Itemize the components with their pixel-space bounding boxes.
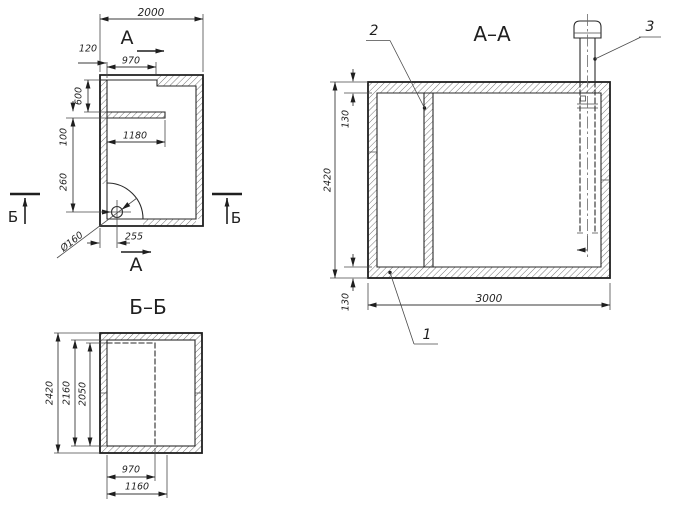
bb-dim-2050-label: 2050: [78, 382, 89, 406]
plan-inner-contour: [100, 80, 196, 219]
bb-bottom-wall: [100, 446, 202, 453]
bb-inner-contour: [107, 340, 195, 446]
bb-opening-hidden-line: [107, 343, 155, 446]
plan-section-marker-b-left: Б: [8, 208, 18, 226]
callout-1-label: 1: [423, 327, 432, 343]
plan-section-marker-a-bottom: А: [130, 254, 143, 276]
aa-bottom-slab: [368, 267, 610, 278]
plan-top-wall: [157, 75, 203, 86]
plan-section-marker-a-top: А: [121, 27, 134, 49]
aa-dim-3000-label: 3000: [476, 293, 503, 305]
plan-pit-arc: [107, 183, 143, 219]
plan-outer-contour: [100, 75, 203, 226]
plan-bottom-wall: [143, 219, 196, 226]
vent-pipe-clamp: [581, 96, 586, 101]
drawing-sheet: 2000 А 120 970 600 100 260 1180 255 Ø160: [0, 0, 679, 514]
aa-outer-contour: [368, 82, 610, 278]
plan-section-marker-b-right: Б: [231, 209, 241, 227]
section-bb-title: Б–Б: [129, 295, 166, 319]
section-aa-title: А–А: [473, 22, 511, 46]
aa-dim-130bot-label: 130: [341, 293, 352, 311]
drawing-canvas: 2000 А 120 970 600 100 260 1180 255 Ø160: [0, 0, 679, 514]
plan-dim-2000-ext: [100, 14, 203, 72]
plan-right-wall: [196, 86, 203, 219]
section-bb-view: Б–Б 2420 2160 2050 970 1160: [45, 295, 203, 499]
plan-left-wall: [100, 80, 107, 184]
aa-inner-contour: [377, 93, 601, 267]
aa-dim-2420-label: 2420: [323, 168, 334, 192]
plan-dim-255-label: 255: [125, 232, 143, 243]
aa-partition-wall: [424, 93, 433, 267]
bb-dim-2420-label: 2420: [45, 381, 56, 405]
plan-diameter-arrow-d: [122, 204, 129, 209]
bb-outer-contour: [100, 333, 202, 453]
bb-top-wall: [100, 333, 202, 340]
bb-dim-1160-label: 1160: [125, 482, 149, 493]
callout-3-leader: [595, 37, 661, 59]
plan-dim-120-label: 120: [79, 44, 97, 55]
plan-view: 2000 А 120 970 600 100 260 1180 255 Ø160: [8, 7, 242, 276]
bb-dim-2160-label: 2160: [62, 381, 73, 405]
plan-partition-wall: [107, 112, 165, 118]
aa-wall-seams: [368, 152, 610, 180]
plan-dim-970-label: 970: [122, 56, 140, 67]
aa-top-slab: [368, 82, 610, 93]
plan-dim-diameter-label: Ø160: [58, 230, 86, 255]
callout-2-label: 2: [370, 23, 379, 39]
plan-dim-600-label: 600: [74, 87, 85, 105]
callout-3-label: 3: [646, 19, 655, 35]
aa-dim-130top-ext: [330, 82, 372, 93]
plan-dim-100-label: 100: [59, 128, 70, 146]
section-aa-view: А–А 2 3 1: [323, 14, 662, 344]
bb-dim-970-label: 970: [122, 465, 140, 476]
plan-dim-1180-label: 1180: [123, 131, 147, 142]
aa-vent-pipe: [574, 14, 601, 258]
aa-left-wall: [368, 93, 377, 267]
aa-dim-130top-label: 130: [341, 110, 352, 128]
plan-dim-260-label: 260: [59, 173, 70, 191]
plan-dim-2000-label: 2000: [138, 7, 165, 19]
